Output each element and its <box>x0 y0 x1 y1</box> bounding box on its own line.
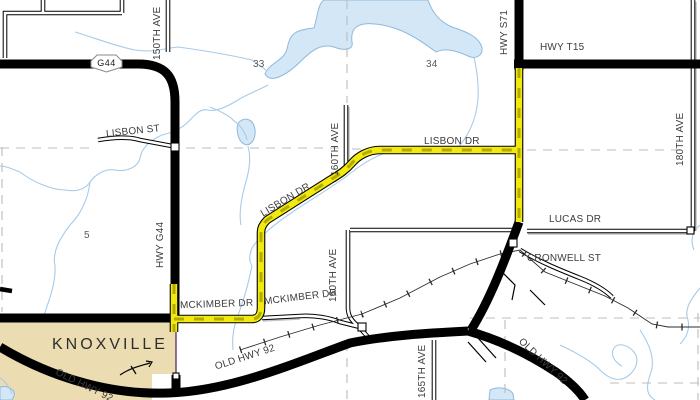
map-canvas[interactable]: G44 150TH AVE LISBON ST HWY G44 160TH AV… <box>0 0 700 400</box>
section-number-33: 33 <box>253 60 265 70</box>
junction-marker-icon <box>509 239 517 247</box>
label-180th-ave: 180TH AVE <box>676 113 686 166</box>
label-hwy-t15: HWY T15 <box>540 43 584 53</box>
label-lucas-dr: LUCAS DR <box>549 215 601 225</box>
label-165th-ave: 165TH AVE <box>418 345 428 398</box>
g44-shield-label: G44 <box>90 58 123 68</box>
label-hwy-g44: HWY G44 <box>156 222 166 268</box>
label-lisbon-dr-east: LISBON DR <box>424 137 480 147</box>
junction-marker-icon <box>171 143 179 151</box>
junction-marker-icon <box>358 323 366 331</box>
section-number-5: 5 <box>84 231 90 241</box>
pond-small <box>237 119 255 145</box>
section-number-34: 34 <box>426 60 438 70</box>
pond-s <box>489 388 514 400</box>
label-hwy-s71: HWY S71 <box>500 10 510 55</box>
town-label-knoxville: KNOXVILLE <box>52 337 168 353</box>
label-150th-ave: 150TH AVE <box>153 7 163 60</box>
junction-marker-icon <box>687 227 694 234</box>
junction-marker-icon <box>173 373 179 379</box>
label-cronwell-st: CRONWELL ST <box>527 254 601 264</box>
g44-route-shield: G44 <box>90 54 123 73</box>
lake-polygon <box>265 0 482 78</box>
label-160th-ave-north: 160TH AVE <box>331 123 341 176</box>
